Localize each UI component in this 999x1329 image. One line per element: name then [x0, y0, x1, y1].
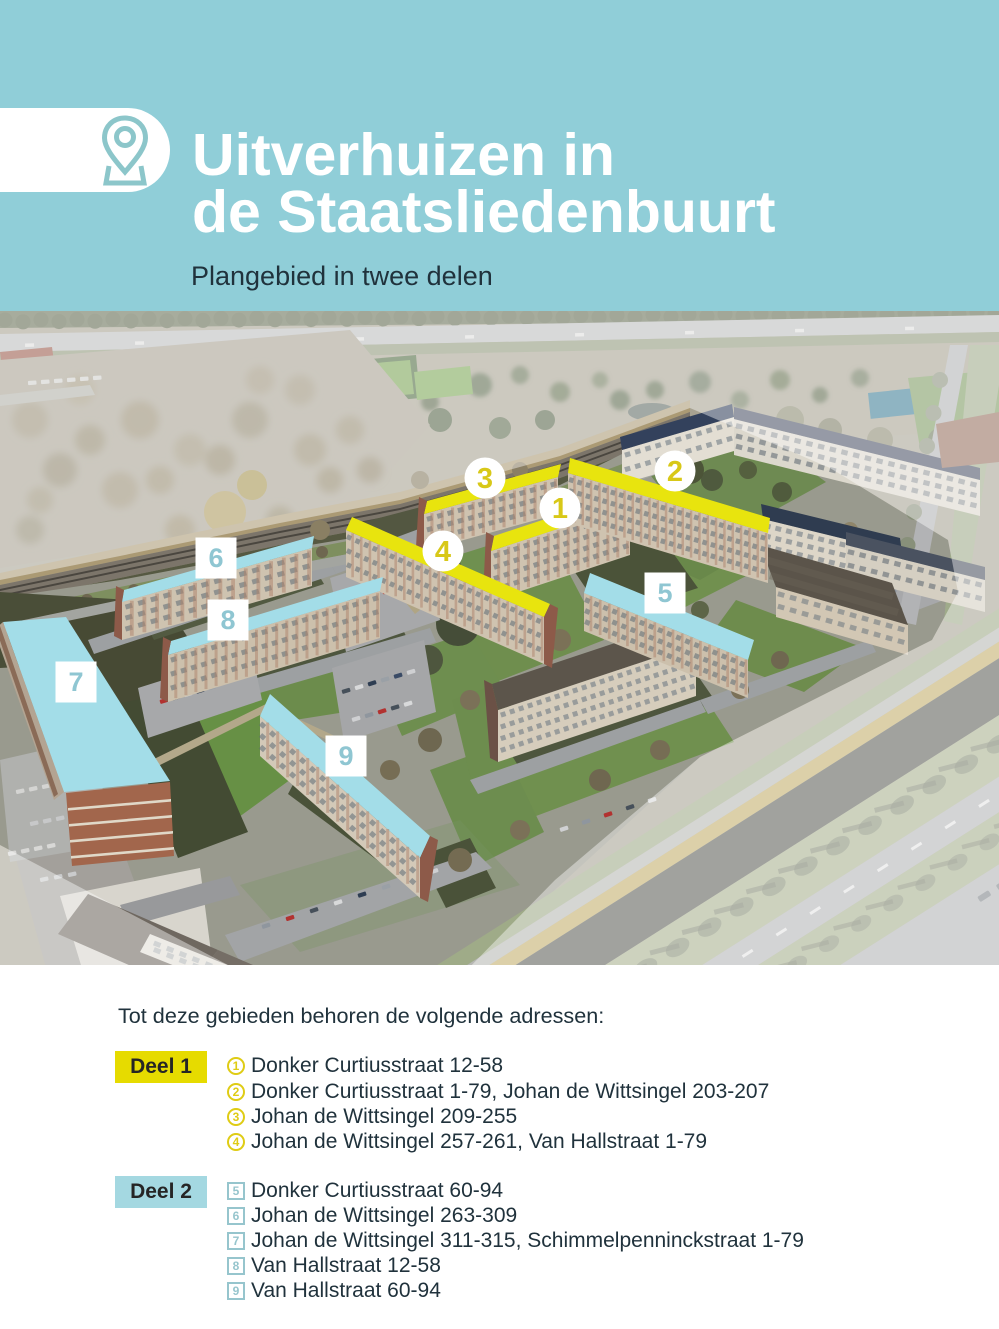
svg-text:1: 1: [552, 493, 568, 525]
svg-text:8: 8: [220, 605, 235, 635]
svg-text:2: 2: [667, 456, 683, 488]
svg-text:9: 9: [338, 741, 353, 771]
svg-text:3: 3: [477, 463, 493, 495]
svg-text:7: 7: [68, 667, 83, 697]
svg-text:5: 5: [657, 578, 672, 608]
svg-text:6: 6: [208, 543, 223, 573]
svg-text:4: 4: [435, 536, 451, 568]
